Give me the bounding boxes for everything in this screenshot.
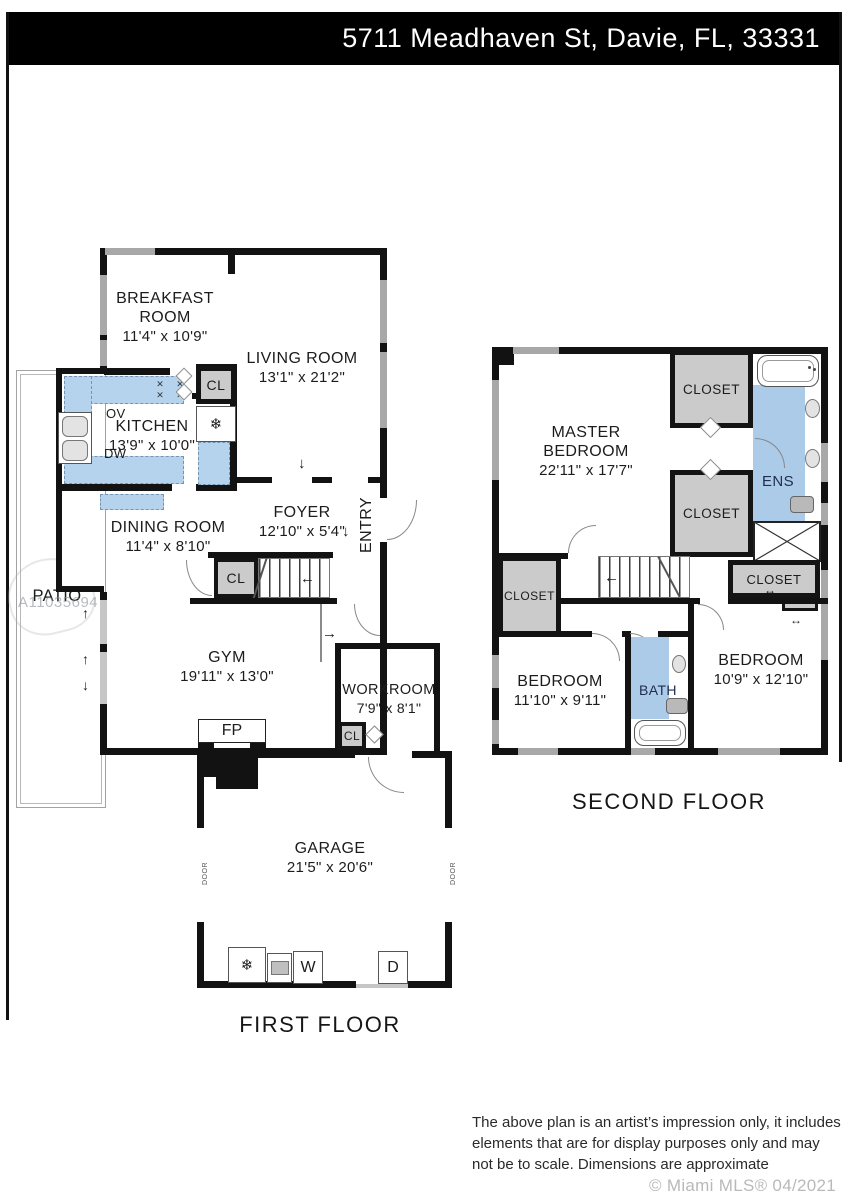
- sink-basin: [62, 416, 88, 437]
- bathtub: [634, 720, 686, 746]
- bath-wall-right: [688, 604, 694, 755]
- gym-door-arc: [354, 604, 380, 636]
- room-label-ensuite: ENS: [748, 472, 808, 491]
- closet-label: CL: [344, 729, 360, 743]
- chimney-base: [216, 777, 258, 789]
- address-banner: 5711 Meadhaven St, Davie, FL, 33331: [6, 12, 842, 65]
- window: [492, 720, 499, 744]
- closet-hall-left: CLOSET: [498, 556, 561, 636]
- room-dims: 21'5" x 20'6": [250, 858, 410, 877]
- garage-wall-left-b: [197, 922, 204, 988]
- left-border-line: [6, 12, 9, 1020]
- right-border-line: [839, 12, 842, 762]
- room-label-bedroom-left: BEDROOM 11'10" x 9'11": [496, 672, 624, 710]
- garage-wall-bottom-b: [408, 981, 452, 988]
- sink-icon: [672, 655, 686, 673]
- room-label-gym: GYM 19'11" x 13'0": [147, 648, 307, 686]
- ff-foyer-wall-a: [237, 477, 272, 483]
- arrow-down-icon: ↓: [298, 456, 306, 471]
- window: [718, 748, 780, 755]
- window: [821, 443, 828, 482]
- garage-wall-left-a: [197, 758, 204, 828]
- room-dims: 22'11" x 17'7": [526, 461, 646, 480]
- arrow-up-icon: ↑: [82, 606, 89, 620]
- sink-icon: [805, 399, 820, 418]
- room-label-bedroom-right: BEDROOM 10'9" x 12'10": [698, 651, 824, 689]
- arrow-down-icon: ↓: [82, 678, 89, 692]
- bedroom-right-door-arc: [698, 604, 724, 630]
- workroom-wall-top: [335, 643, 440, 649]
- closet-master-top: CLOSET: [670, 350, 753, 428]
- room-name: ENS: [748, 472, 808, 491]
- copyright: © Miami MLS® 04/2021: [600, 1176, 836, 1196]
- sf-corner-notch: [492, 347, 514, 365]
- kitchen-wall-left: [56, 368, 62, 592]
- closet-label: CLOSET: [683, 506, 740, 521]
- ff-foyer-wall-c: [368, 477, 387, 483]
- dryer: D: [378, 951, 408, 984]
- stairs-closet-door-arc: [186, 560, 212, 596]
- room-label-master: MASTER BEDROOM 22'11" x 17'7": [526, 423, 646, 480]
- arrow-right-icon: →: [322, 626, 337, 641]
- closet-master-mid: CLOSET: [670, 470, 753, 557]
- room-name: ENTRY: [357, 497, 376, 553]
- kitchen-dining-wall-a: [58, 484, 172, 491]
- room-name: MASTER BEDROOM: [526, 423, 646, 461]
- sf-wall-right: [821, 354, 828, 755]
- door-label: DOOR: [202, 862, 209, 885]
- bathtub-inner: [762, 360, 814, 382]
- window: [492, 380, 499, 480]
- bathtub-inner: [639, 725, 681, 741]
- garage-wall-top-b: [412, 751, 452, 758]
- second-floor-title: SECOND FLOOR: [569, 789, 769, 815]
- stairs-wall-bottom: [190, 598, 337, 604]
- arrow-left-icon: ←: [300, 571, 315, 586]
- room-name: LIVING ROOM: [212, 349, 392, 368]
- burner-icon: ✕: [156, 390, 164, 401]
- garage-rear-sill: [356, 984, 408, 988]
- room-name: DINING ROOM: [88, 518, 248, 537]
- room-dims: 19'11" x 13'0": [147, 667, 307, 686]
- washer: W: [293, 951, 323, 984]
- shower-icon: [753, 521, 821, 562]
- patio-slider: [100, 652, 107, 704]
- bedrooml-wall-top-a: [492, 631, 592, 637]
- fireplace-label: FP: [222, 722, 242, 740]
- window: [105, 248, 155, 255]
- disclaimer: The above plan is an artist’s impression…: [472, 1112, 844, 1175]
- room-label-bath: BATH: [632, 681, 684, 700]
- disclaimer-line: elements that are for display purposes o…: [472, 1133, 844, 1154]
- disclaimer-line: The above plan is an artist’s impression…: [472, 1112, 844, 1133]
- bathtub: [757, 355, 819, 387]
- bath-floor: [631, 637, 669, 719]
- ff-divider-stub: [228, 248, 235, 274]
- burner-icon: ✕: [156, 379, 164, 390]
- arrow-left-icon: ←: [604, 570, 619, 585]
- master-door-arc: [568, 525, 596, 553]
- room-dims: 7'9" x 8'1": [341, 699, 437, 717]
- bedroomr-wall-top-b: [728, 598, 828, 604]
- ff-foyer-wall-b: [312, 477, 332, 483]
- window: [513, 347, 559, 354]
- kitchen-wall-top: [56, 368, 104, 374]
- dryer-label: D: [387, 959, 399, 977]
- room-label-breakfast: BREAKFAST ROOM 11'4" x 10'9": [100, 289, 230, 346]
- room-label-living: LIVING ROOM 13'1" x 21'2": [212, 349, 392, 387]
- garage-door-arc: [368, 757, 404, 793]
- arrow-down-icon: ↓: [342, 524, 350, 539]
- room-label-garage: GARAGE 21'5" x 20'6": [250, 839, 410, 877]
- bedroom-left-door-arc: [592, 633, 620, 661]
- room-label-workroom: WORKROOM 7'9" x 8'1": [341, 681, 437, 717]
- counter-island: [100, 494, 164, 510]
- room-dims: 13'1" x 21'2": [212, 368, 392, 387]
- arrow-up-icon: ↑: [82, 652, 89, 666]
- room-name: BEDROOM: [698, 651, 824, 670]
- room-name: GYM: [147, 648, 307, 667]
- closet-cl-stairs: CL: [214, 558, 258, 598]
- stairwell-wall-bottom: [560, 598, 697, 604]
- garage-wall-right-b: [445, 922, 452, 988]
- room-name: BREAKFAST ROOM: [100, 289, 230, 327]
- faucet-dot: [813, 368, 816, 371]
- closet-cl-workroom: CL: [338, 722, 366, 750]
- closet-label: CLOSET: [683, 382, 740, 397]
- sink-basin: [62, 440, 88, 461]
- fridge-icon: ❄: [196, 406, 236, 442]
- room-name: BATH: [632, 681, 684, 700]
- first-floor-title: FIRST FLOOR: [220, 1012, 420, 1038]
- window: [821, 570, 828, 660]
- garage-wall-right-a: [445, 758, 452, 828]
- floorplan-page: 5711 Meadhaven St, Davie, FL, 33331 PATI…: [0, 0, 848, 1200]
- room-dims: 11'4" x 10'9": [100, 327, 230, 346]
- disclaimer-line: not be to scale. Dimensions are approxim…: [472, 1154, 844, 1175]
- entry-door-arc: [387, 500, 417, 540]
- patio-slider: [100, 600, 107, 644]
- door-label: DOOR: [450, 862, 457, 885]
- room-name: BEDROOM: [496, 672, 624, 691]
- room-dims: 11'10" x 9'11": [496, 691, 624, 710]
- room-name: WORKROOM: [341, 681, 437, 699]
- kitchen-wall-bottom: [56, 586, 104, 592]
- kitchen-breakfast-wall: [104, 368, 170, 375]
- faucet-dot: [808, 366, 811, 369]
- address-text: 5711 Meadhaven St, Davie, FL, 33331: [342, 23, 820, 54]
- window: [628, 748, 655, 755]
- room-dims: 10'9" x 12'10": [698, 670, 824, 689]
- laundry-tub-basin: [271, 961, 289, 975]
- sink-icon: [805, 449, 820, 468]
- window: [380, 280, 387, 343]
- fridge-icon: ❄: [228, 947, 266, 983]
- toilet-icon: [790, 496, 814, 513]
- arrow-both-icon: ↔: [790, 614, 802, 626]
- window: [518, 748, 558, 755]
- closet-label: CLOSET: [504, 589, 555, 603]
- snowflake-icon: ❄: [210, 415, 223, 433]
- garage-wall-top-a: [197, 751, 355, 758]
- window: [821, 503, 828, 525]
- room-name: GARAGE: [250, 839, 410, 858]
- toilet-icon: [666, 698, 688, 714]
- staircase-first: [258, 558, 330, 598]
- room-label-dining: DINING ROOM 11'4" x 8'10": [88, 518, 248, 556]
- snowflake-icon: ❄: [241, 956, 254, 974]
- fireplace: FP: [198, 719, 266, 743]
- arrow-both-icon: ↔: [764, 584, 776, 596]
- washer-label: W: [300, 959, 315, 977]
- closet-label: CL: [227, 570, 246, 586]
